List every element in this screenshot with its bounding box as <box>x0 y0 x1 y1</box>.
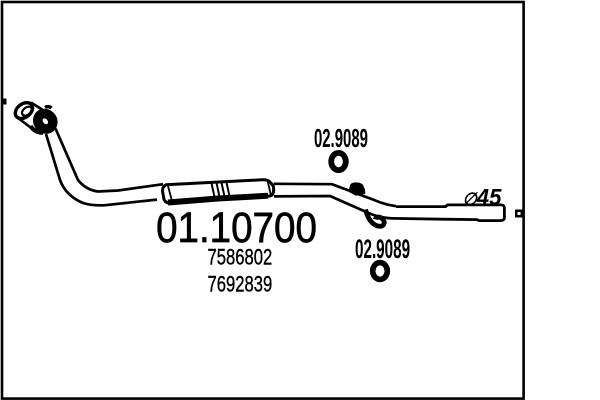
svg-text:02.9089: 02.9089 <box>314 125 368 153</box>
svg-text:02.9089: 02.9089 <box>355 233 410 264</box>
svg-text:7692839: 7692839 <box>208 272 273 297</box>
svg-text:7586802: 7586802 <box>208 245 273 270</box>
